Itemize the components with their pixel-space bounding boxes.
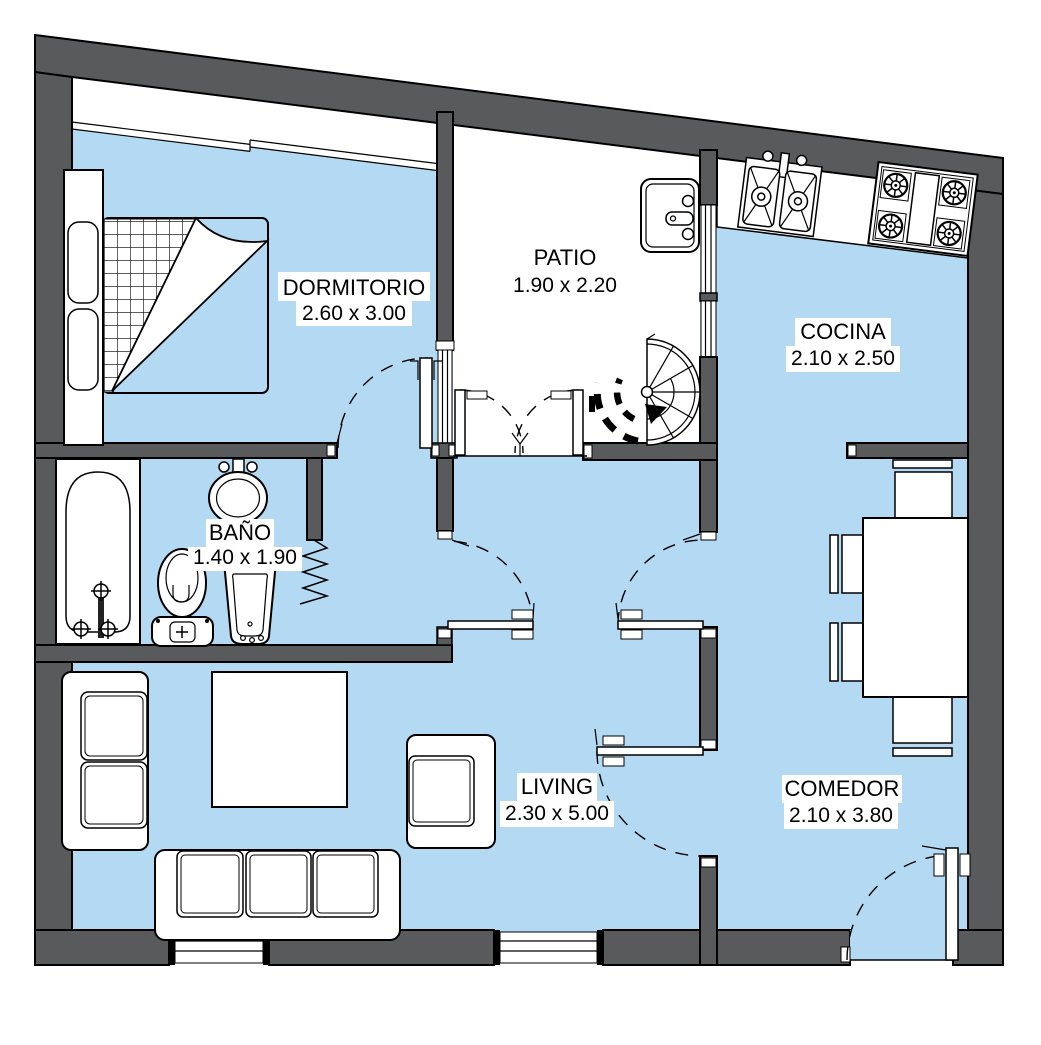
room-size: 2.60 x 3.00 — [302, 302, 406, 325]
bathroom-bottom-wall — [35, 645, 452, 662]
room-name: DORMITORIO — [283, 275, 426, 300]
bed-headboard — [64, 170, 103, 445]
label-comedor: COMEDOR 2.10 x 3.80 — [782, 775, 902, 829]
window — [500, 932, 597, 963]
room-size: 1.40 x 1.90 — [193, 546, 297, 569]
sofa — [155, 850, 400, 940]
bidet — [225, 567, 276, 644]
patio-cocina-wall — [700, 150, 717, 205]
label-living: LIVING 2.30 x 5.00 — [500, 773, 614, 827]
cocina-comedor-wall — [847, 443, 968, 458]
armchair — [407, 735, 495, 848]
room-size: 2.30 x 5.00 — [505, 802, 609, 825]
dining-chair — [842, 535, 864, 593]
room-name: COCINA — [800, 319, 886, 344]
room-size: 1.90 x 2.20 — [513, 274, 617, 297]
bottom-wall-segment — [35, 930, 169, 965]
dining-table — [863, 518, 968, 697]
pillow — [68, 222, 98, 303]
dining-chair — [830, 623, 838, 681]
coffee-table — [212, 672, 347, 807]
label-dormitorio: DORMITORIO 2.60 x 3.00 — [278, 272, 430, 326]
room-name: LIVING — [521, 774, 593, 799]
bathroom-right-wall — [307, 458, 322, 540]
label-cocina: COCINA 2.10 x 2.50 — [786, 318, 900, 372]
room-name: COMEDOR — [785, 776, 900, 801]
stove — [868, 162, 977, 256]
pillow — [68, 309, 98, 390]
room-size: 2.10 x 2.50 — [791, 347, 895, 370]
bedroom-patio-wall — [437, 112, 453, 350]
living-comedor-wall-lower — [700, 856, 717, 965]
right-wall — [968, 186, 1003, 965]
dining-chair — [842, 623, 864, 681]
dining-chair — [895, 472, 952, 518]
laundry-sink — [641, 179, 699, 252]
loveseat — [62, 672, 148, 850]
window — [438, 350, 452, 443]
stair-pole — [642, 387, 653, 398]
hall-stub-wall — [437, 458, 453, 531]
window — [701, 205, 716, 293]
bathtub — [56, 459, 140, 644]
dining-chair — [830, 535, 838, 593]
window — [701, 301, 716, 357]
room-size: 2.10 x 3.80 — [789, 804, 893, 827]
dining-chair — [893, 697, 952, 743]
room-name: BAÑO — [209, 520, 271, 545]
bottom-wall-segment — [953, 930, 1003, 965]
living-comedor-wall-upper — [700, 627, 717, 750]
room-name: PATIO — [534, 245, 597, 270]
bottom-wall-segment — [603, 930, 850, 965]
entrance-threshold — [850, 930, 953, 960]
dining-chair — [893, 748, 952, 756]
dining-chair — [893, 460, 952, 468]
floor-plan-canvas: DORMITORIO 2.60 x 3.00 PATIO 1.90 x 2.20… — [0, 0, 1041, 1045]
floor-plan: DORMITORIO 2.60 x 3.00 PATIO 1.90 x 2.20… — [0, 0, 1041, 1045]
